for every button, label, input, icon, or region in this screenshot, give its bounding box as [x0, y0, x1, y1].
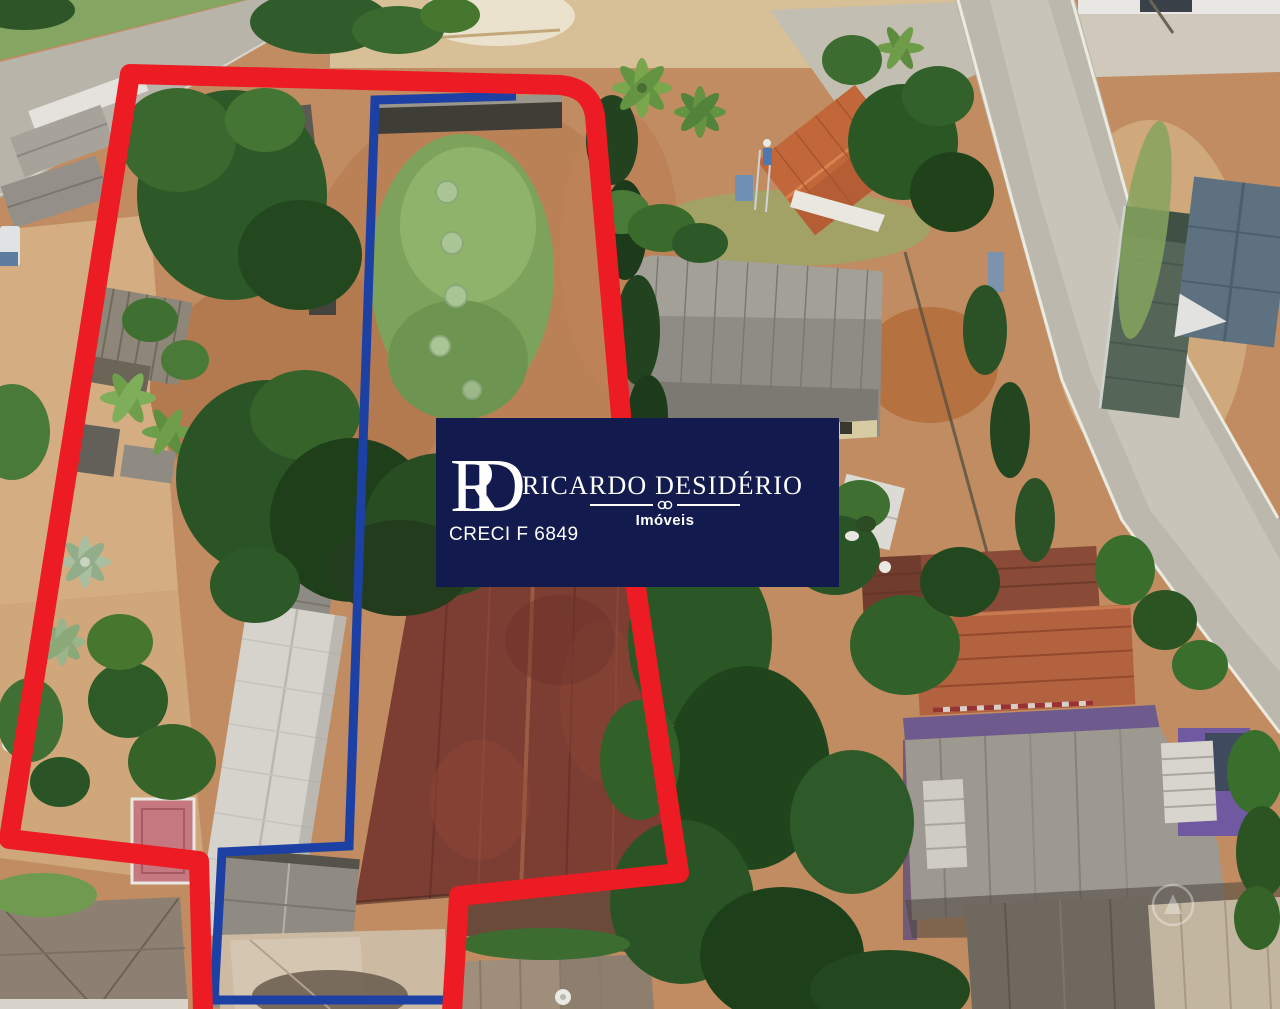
blue-water-tank: [735, 175, 753, 201]
metal-sheet-stack: [1161, 741, 1217, 824]
aerial-photo: [0, 0, 1280, 1009]
wood-plank-roof: [448, 954, 654, 1009]
satellite-dish: [879, 561, 891, 573]
palm-tree: [674, 86, 726, 138]
fan-palm: [59, 536, 111, 588]
blue-object: [988, 252, 1004, 292]
aerial-listing-image: RD RICARDO DESIDÉRIO Imóveis CRECI F 684…: [0, 0, 1280, 1009]
pink-structure: [132, 799, 194, 883]
palm-tree: [612, 58, 672, 118]
hedge: [460, 928, 630, 960]
satellite-dish: [555, 989, 571, 1005]
brand-banner-background: [436, 418, 839, 587]
parked-truck: [0, 226, 20, 266]
